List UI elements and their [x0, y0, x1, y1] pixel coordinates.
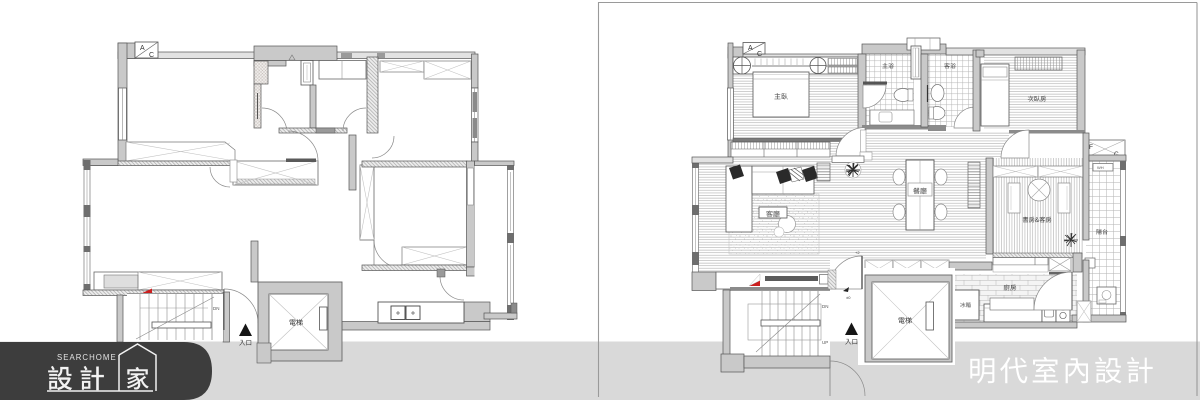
svg-text:C: C: [149, 52, 154, 59]
svg-text:+2: +2: [855, 250, 860, 255]
svg-text:A: A: [140, 45, 145, 52]
svg-text:A: A: [748, 45, 753, 52]
svg-text:WH: WH: [1097, 165, 1104, 170]
svg-text:DN: DN: [213, 306, 220, 311]
svg-text:DN: DN: [822, 304, 829, 309]
svg-text:SEARCHOME: SEARCHOME: [57, 353, 117, 362]
svg-text:UP: UP: [822, 340, 828, 345]
svg-text:F: F: [1089, 144, 1093, 151]
svg-text:±0: ±0: [846, 295, 851, 300]
